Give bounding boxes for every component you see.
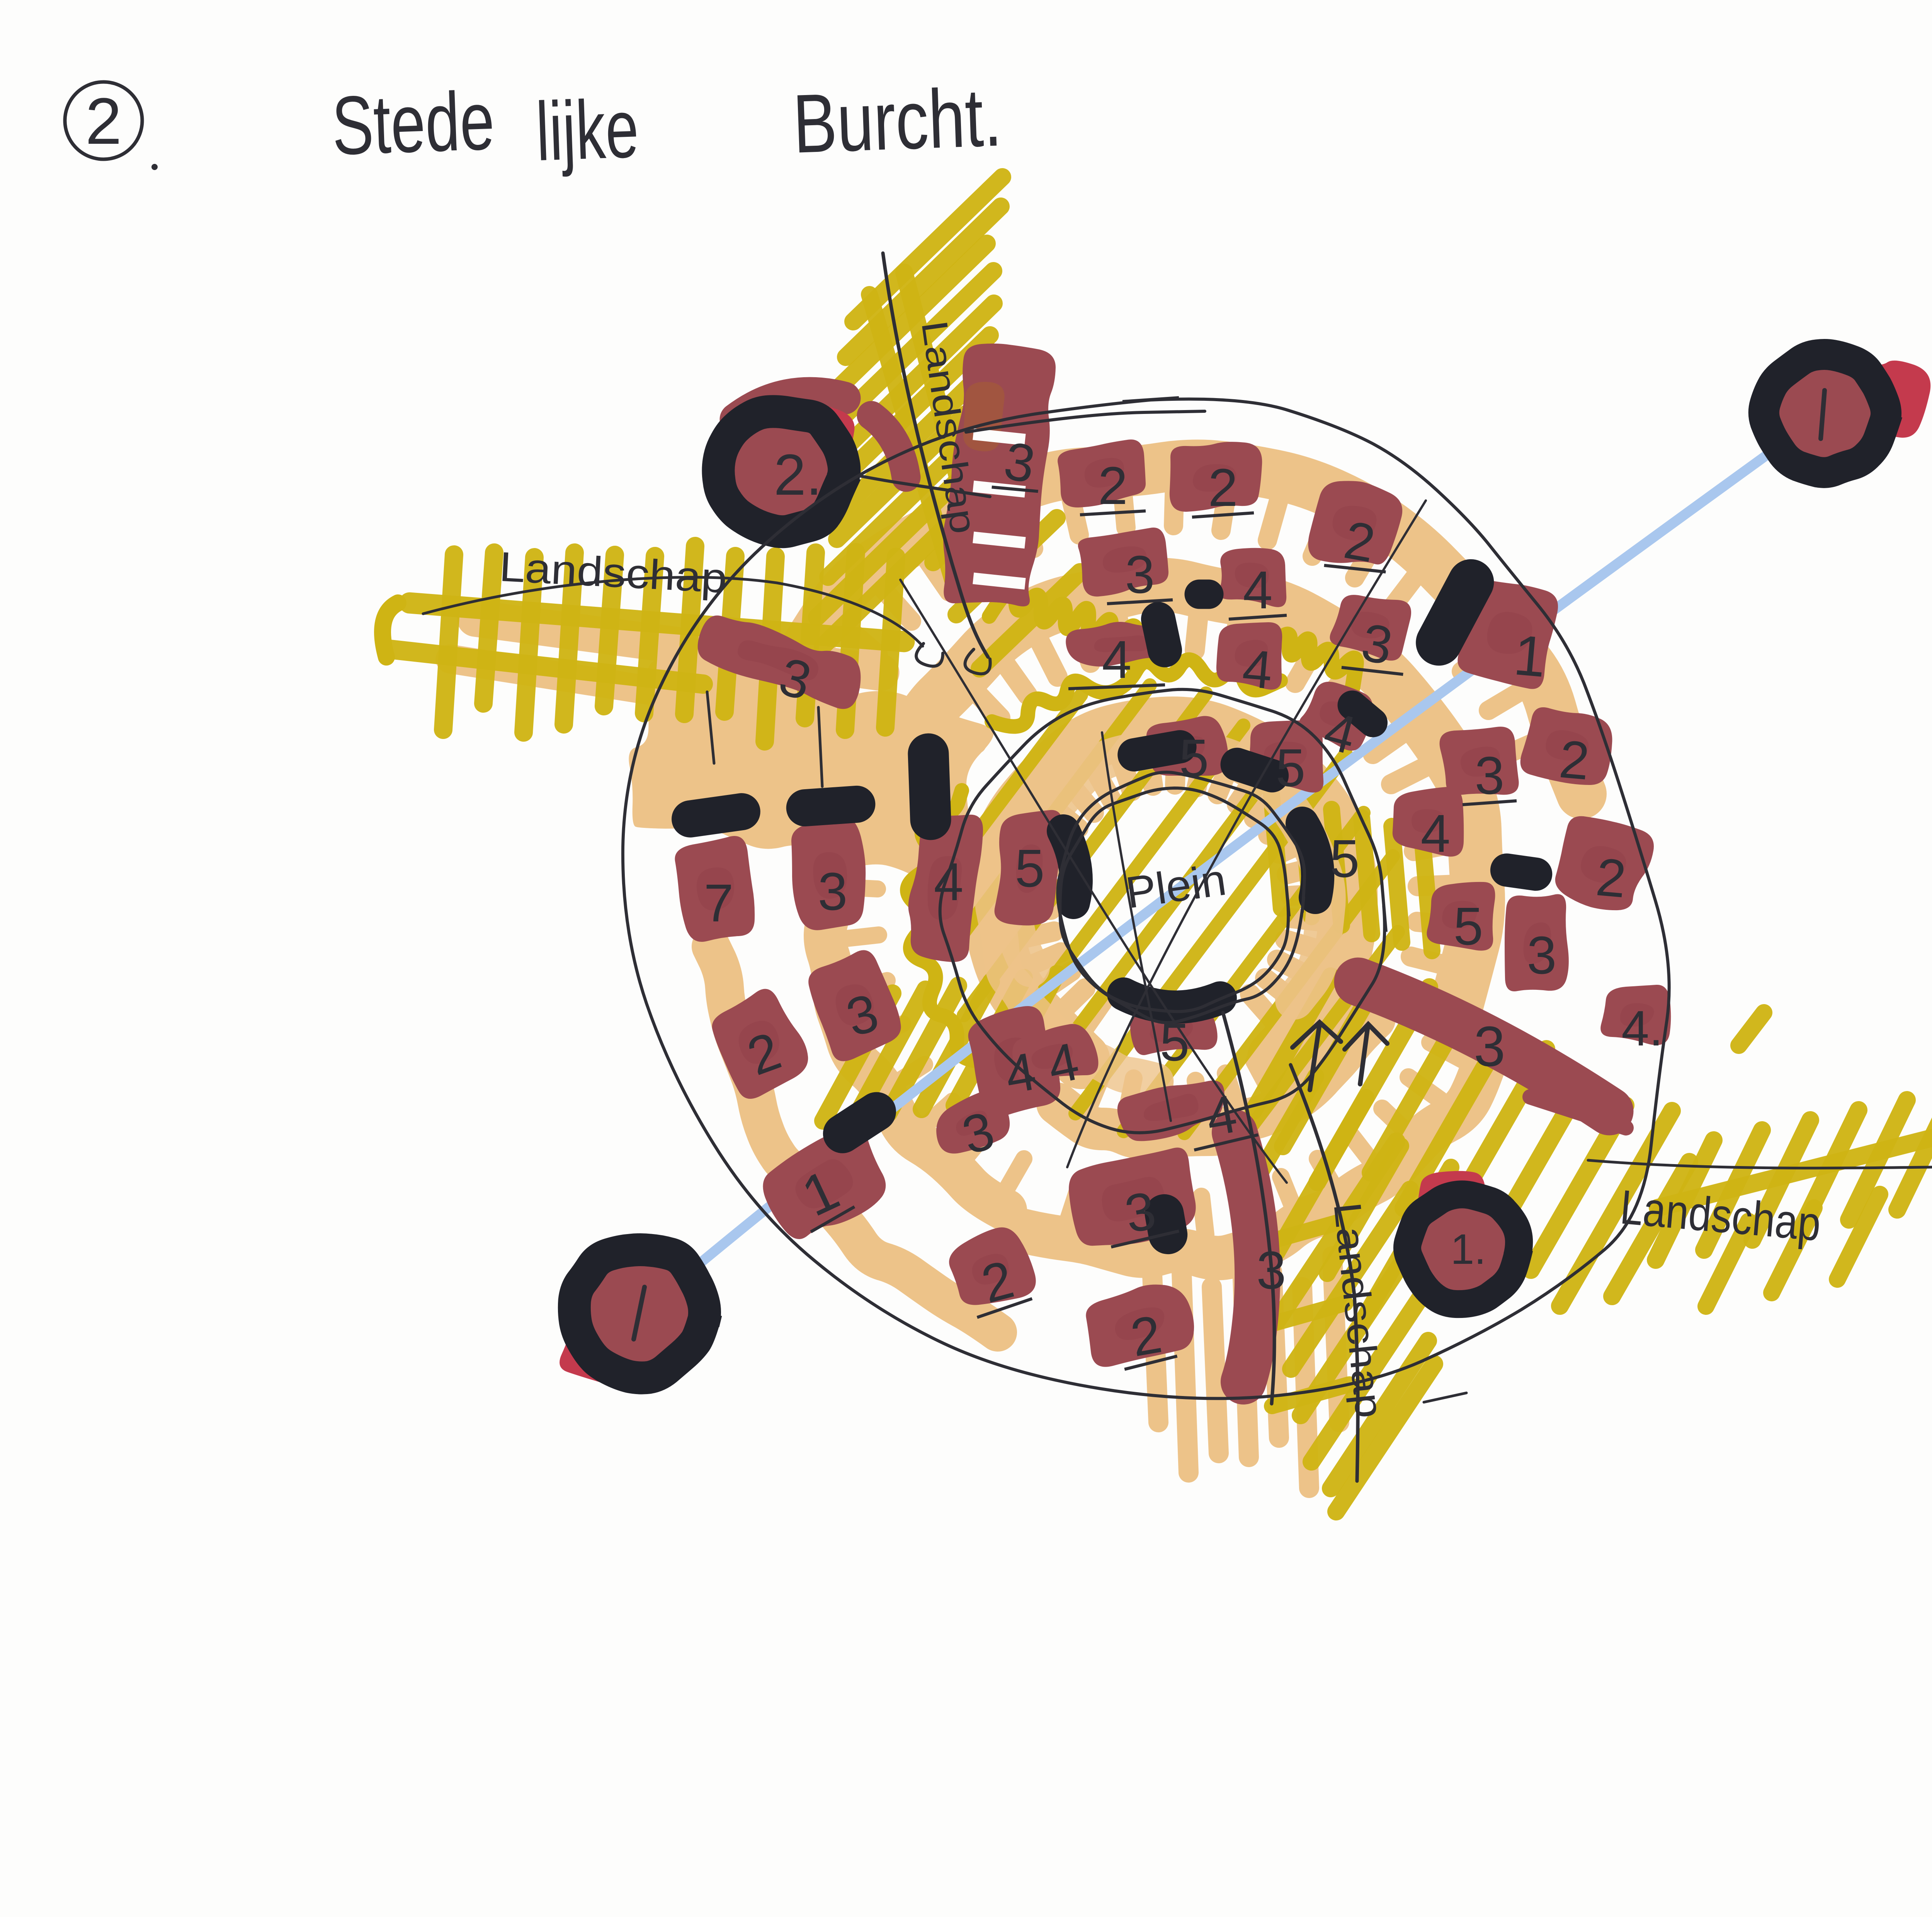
svg-text:3: 3 (1527, 926, 1557, 985)
svg-text:5: 5 (1179, 729, 1209, 788)
svg-text:4: 4 (934, 852, 964, 912)
svg-text:1: 1 (1511, 623, 1548, 690)
svg-text:Stede: Stede (330, 73, 496, 172)
svg-text:lijke: lijke (534, 82, 640, 178)
svg-text:5: 5 (1454, 897, 1483, 956)
svg-text:2: 2 (1098, 456, 1128, 516)
svg-text:Burcht.: Burcht. (791, 70, 1003, 170)
svg-text:5: 5 (1276, 738, 1306, 798)
svg-text:3: 3 (1257, 1241, 1286, 1300)
svg-text:4: 4 (1243, 560, 1273, 620)
svg-text:2: 2 (1208, 458, 1238, 518)
svg-text:4: 4 (1102, 630, 1132, 690)
svg-text:2: 2 (1594, 847, 1628, 909)
svg-text:4: 4 (1240, 638, 1275, 700)
svg-text:3: 3 (1475, 746, 1505, 805)
svg-text:2: 2 (85, 85, 122, 158)
svg-text:3: 3 (1125, 545, 1155, 604)
svg-text:3: 3 (1474, 1015, 1505, 1078)
svg-text:5: 5 (1015, 839, 1045, 898)
svg-text:4.: 4. (1621, 1001, 1663, 1056)
svg-text:5: 5 (1160, 1013, 1190, 1072)
svg-text:2.: 2. (774, 442, 822, 507)
svg-text:4: 4 (1421, 804, 1451, 863)
svg-text:5: 5 (1330, 829, 1360, 889)
svg-text:7: 7 (704, 873, 734, 933)
svg-text:3: 3 (818, 862, 848, 921)
svg-text:1.: 1. (1451, 1226, 1486, 1273)
svg-text:2: 2 (1557, 729, 1592, 791)
